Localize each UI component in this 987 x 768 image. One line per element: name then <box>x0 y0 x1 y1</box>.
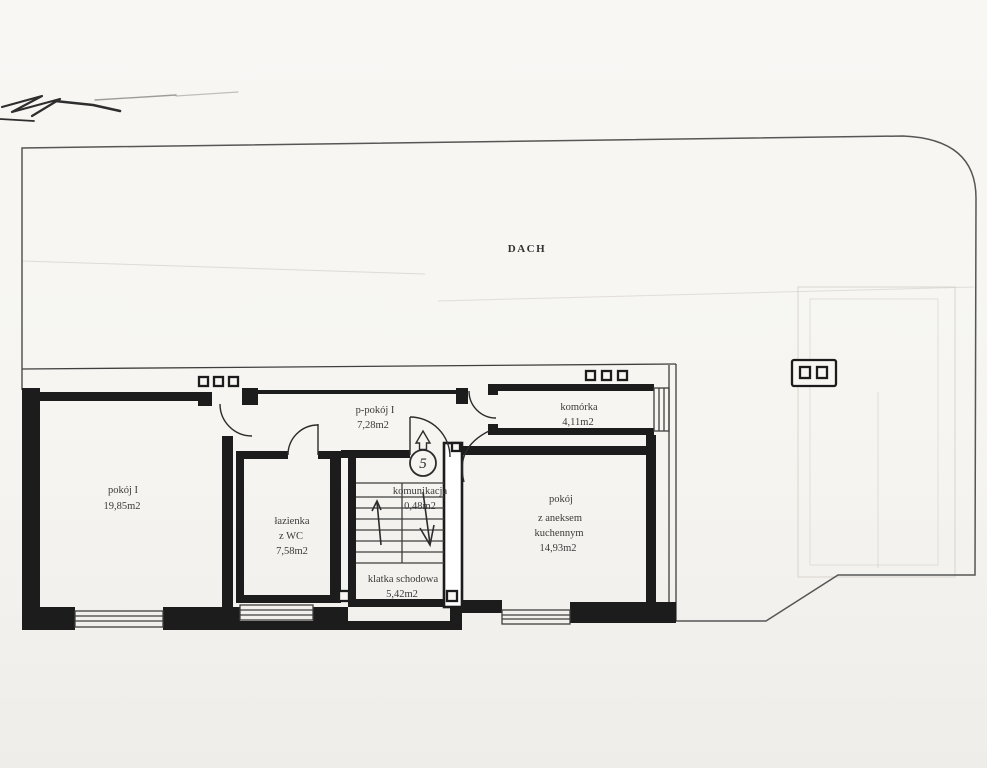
scanned-floor-plan-page: DACH <box>0 0 987 768</box>
window-pokoj1 <box>75 611 163 627</box>
svg-text:z aneksem: z aneksem <box>538 513 582 524</box>
svg-text:łazienka: łazienka <box>275 516 310 527</box>
svg-text:0,48m2: 0,48m2 <box>404 501 436 512</box>
chimney-symbols <box>199 360 836 386</box>
unit-number-badge: 5 <box>410 431 436 476</box>
label-klatka-schodowa: klatka schodowa 5,42m2 <box>368 574 439 600</box>
chimney-group-right <box>586 371 627 380</box>
svg-text:7,28m2: 7,28m2 <box>357 420 389 431</box>
svg-text:14,93m2: 14,93m2 <box>539 543 576 554</box>
svg-text:z WC: z WC <box>279 531 303 542</box>
door-lazienka <box>288 424 318 455</box>
svg-text:4,11m2: 4,11m2 <box>562 417 593 428</box>
window-komorka <box>654 388 669 431</box>
svg-text:komunikacja: komunikacja <box>393 486 448 497</box>
svg-text:19,85m2: 19,85m2 <box>103 501 140 512</box>
label-pokoj-aneks: pokój z aneksem kuchennym 14,93m2 <box>535 494 584 554</box>
unit-number: 5 <box>419 456 427 472</box>
window-pokoj-aneks <box>502 610 570 624</box>
door-arc-komorka <box>469 391 496 418</box>
svg-text:komórka: komórka <box>560 402 598 413</box>
window-lazienka <box>240 605 313 620</box>
door-arc-pokoj-aneks <box>462 431 489 482</box>
svg-text:5,42m2: 5,42m2 <box>386 589 418 600</box>
svg-text:p-pokój I: p-pokój I <box>356 405 395 416</box>
chimney-box-roof <box>792 360 836 386</box>
label-ppokoj: p-pokój I 7,28m2 <box>356 405 395 431</box>
chimney-group-left <box>199 377 238 386</box>
svg-text:kuchennym: kuchennym <box>535 528 584 539</box>
roof-label: DACH <box>508 243 546 255</box>
floor-plan-drawing: DACH <box>0 0 987 768</box>
label-pokoj1: pokój I 19,85m2 <box>103 485 140 512</box>
svg-text:klatka schodowa: klatka schodowa <box>368 574 439 585</box>
svg-text:pokój I: pokój I <box>108 485 139 496</box>
north-arrow-icon <box>416 431 430 450</box>
door-arc-pokoj1 <box>220 404 252 436</box>
label-lazienka: łazienka z WC 7,58m2 <box>275 516 310 557</box>
svg-text:7,58m2: 7,58m2 <box>276 546 308 557</box>
ghost-marks <box>22 261 974 577</box>
svg-text:pokój: pokój <box>549 494 573 505</box>
pencil-scribble <box>0 92 238 121</box>
roof-area: DACH <box>508 243 546 255</box>
label-komorka: komórka 4,11m2 <box>560 402 598 428</box>
